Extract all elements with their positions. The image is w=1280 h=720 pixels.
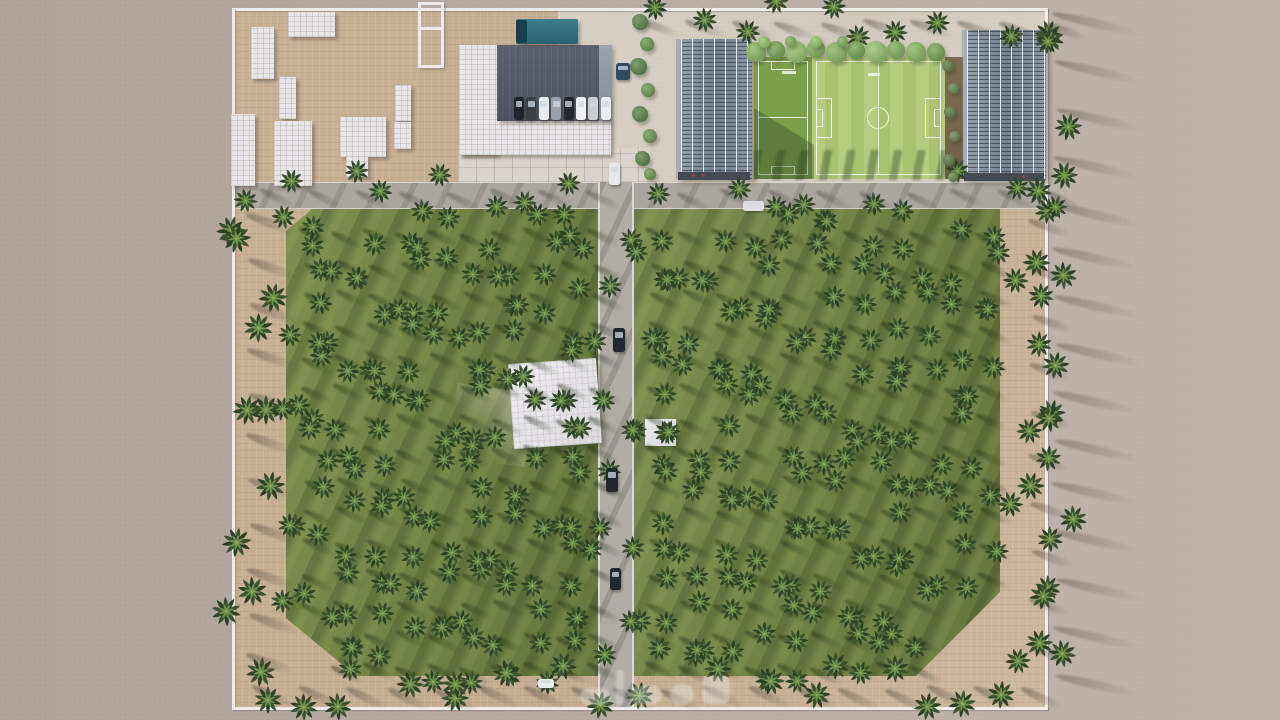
palm-tree-icon [484,246,511,273]
palm-tree-icon [322,312,349,339]
palm-tree-icon [967,277,994,304]
palm-tree-icon [434,179,461,206]
palm-tree-icon [985,7,1013,35]
palm-tree-icon [803,466,830,493]
palm-tree-icon [354,526,381,553]
palm-tree-icon [866,561,893,588]
palm-tree-icon [478,434,505,461]
palm-tree-icon [452,466,479,493]
palm-tree-icon [234,287,267,320]
palm-tree-icon [830,217,857,244]
palm-tree-icon [232,242,265,275]
palm-tree-icon [547,276,574,303]
palm-tree-icon [768,310,795,337]
round-tree [785,36,796,47]
watermark-glyph [580,688,610,705]
palm-tree-icon [698,215,725,242]
red-equipment-dot [1022,175,1025,178]
round-tree [847,41,865,59]
palm-tree-icon [1039,515,1070,546]
palm-tree-icon [319,623,346,650]
residential-block [279,77,296,119]
palm-tree-icon [764,433,791,460]
palm-tree-icon [834,528,861,555]
round-tree [927,43,945,61]
palm-tree-icon [669,312,696,339]
palm-tree-icon [446,220,473,247]
palm-tree-icon [899,558,926,585]
residential-block [340,117,386,157]
watermark-glyph [616,670,624,705]
palm-tree-icon [835,499,862,526]
palm-tree-icon [664,179,691,206]
palm-tree-icon [781,671,812,702]
round-tree [906,42,926,62]
round-tree [643,129,657,143]
round-tree [865,41,887,63]
palm-tree-icon [896,218,923,245]
palm-tree-icon [462,669,493,700]
palm-tree-icon [351,403,378,430]
solar-roof-greenhouse-west [676,39,752,179]
palm-tree-icon [933,526,960,553]
palm-tree-icon [232,462,265,495]
palm-tree-icon [231,332,264,365]
palm-tree-icon [288,590,315,617]
palm-tree-icon [417,556,444,583]
palm-tree-icon [896,435,923,462]
palm-tree-icon [509,670,540,701]
palm-tree-icon [511,619,538,646]
palm-tree-icon [388,465,415,492]
round-tree [948,172,958,182]
palm-tree-icon [331,671,362,702]
palm-tree-icon [482,311,509,338]
car [576,97,586,120]
palm-tree-icon [985,176,1012,203]
palm-tree-icon [547,493,574,520]
palm-tree-icon [548,464,575,491]
palm-tree-icon [451,495,478,522]
palm-tree-icon [234,507,267,540]
palm-tree-icon [799,372,826,399]
palm-tree-icon [289,561,316,588]
palm-tree-icon [510,431,537,458]
palm-tree-icon [510,214,537,241]
palm-tree-icon [703,280,730,307]
walled-enclosure [418,2,444,68]
palm-tree-icon [666,623,693,650]
palm-tree-icon [760,7,788,35]
palm-tree-icon [1041,563,1072,594]
palm-tree-icon [736,494,763,521]
palm-tree-icon [965,342,992,369]
palm-tree-icon [247,175,274,202]
palm-tree-icon [450,524,477,551]
palm-tree-icon [542,435,569,462]
palm-tree-icon [632,431,659,458]
palm-tree-icon [912,669,943,700]
palm-tree-icon [448,589,475,616]
palm-tree-icon [698,432,725,459]
palm-tree-icon [833,340,860,367]
car [743,201,764,211]
palm-tree-icon [1037,467,1068,498]
palm-tree-icon [962,436,989,463]
car [601,97,611,120]
palm-tree-icon [417,339,444,366]
palm-tree-icon [968,465,995,492]
palm-tree-icon [286,431,313,458]
field-marking [782,71,796,74]
palm-tree-icon [350,215,377,242]
palm-tree-icon [354,309,381,336]
palm-tree-icon [1041,328,1072,359]
palm-tree-icon [573,177,600,204]
palm-tree-icon [943,6,971,34]
goal-box [934,109,941,127]
palm-tree-icon [867,308,894,335]
round-tree [943,154,955,166]
palm-tree-icon [1040,424,1071,455]
palm-tree-icon [544,587,571,614]
palm-tree-icon [700,591,727,618]
palm-tree-icon [1014,439,1043,468]
palm-tree-icon [544,370,571,397]
palm-tree-icon [484,463,511,490]
palm-tree-icon [386,530,413,557]
palm-tree-icon [718,6,746,34]
palm-tree-icon [803,177,830,204]
round-tree [758,36,770,48]
palm-tree-icon [1041,93,1072,124]
palm-tree-icon [383,617,410,644]
palm-tree-icon [230,637,263,670]
palm-tree-icon [637,496,664,523]
palm-tree-icon [699,403,726,430]
palm-tree-icon [802,278,829,305]
palm-tree-icon [967,494,994,521]
palm-tree-icon [291,279,318,306]
palm-tree-icon [733,588,760,615]
palm-tree-icon [1040,659,1071,690]
palm-tree-icon [288,373,315,400]
round-tree [942,60,954,72]
palm-tree-icon [737,248,764,275]
palm-tree-icon [632,214,659,241]
round-tree [944,106,956,118]
palm-tree-icon [702,526,729,553]
palm-tree-icon [768,527,795,554]
palm-tree-icon [849,4,877,32]
palm-tree-icon [968,248,995,275]
car [538,679,554,688]
palm-tree-icon [545,558,572,585]
palm-tree-icon [832,586,859,613]
palm-tree-icon [543,623,570,650]
aerial-site-plan-render [0,0,1280,720]
palm-tree-icon [866,344,893,371]
palm-tree-icon [233,597,266,630]
palm-tree-icon [574,432,601,459]
palm-tree-icon [894,179,921,206]
palm-tree-icon [576,374,603,401]
palm-tree-icon [667,370,694,397]
palm-tree-icon [418,527,445,554]
palm-tree-icon [870,673,901,704]
palm-tree-icon [447,401,474,428]
palm-tree-icon [797,437,824,464]
palm-tree-icon [665,218,692,245]
palm-tree-icon [284,670,315,701]
palm-tree-icon [634,590,661,617]
palm-tree-icon [516,250,543,277]
palm-tree-icon [577,338,604,365]
palm-tree-icon [635,561,662,588]
palm-tree-icon [832,369,859,396]
car [606,468,618,492]
palm-tree-icon [579,280,606,307]
palm-tree-icon [864,402,891,429]
palm-tree-icon [578,309,605,336]
round-tree [632,14,648,30]
palm-tree-icon [579,497,606,524]
round-tree [644,168,656,180]
palm-tree-icon [755,176,782,203]
palm-tree-icon [292,467,319,494]
palm-tree-icon [807,8,835,36]
palm-tree-icon [737,465,764,492]
palm-tree-icon [387,277,414,304]
palm-tree-icon [731,219,758,246]
residential-block [288,12,335,37]
palm-tree-icon [343,177,370,204]
palm-tree-icon [865,590,892,617]
palm-tree-icon [231,552,264,585]
palm-tree-icon [480,586,507,613]
palm-tree-icon [767,339,794,366]
palm-tree-icon [414,216,441,243]
palm-tree-icon [415,404,442,431]
palm-tree-icon [865,373,892,400]
palm-tree-icon [898,587,925,614]
residential-block [394,122,411,149]
round-tree [641,83,655,97]
palm-tree-icon [670,493,697,520]
palm-tree-icon [382,219,409,246]
palm-tree-icon [833,557,860,584]
round-tree [810,36,822,48]
palm-tree-icon [321,341,348,368]
palm-tree-icon [237,669,268,700]
palm-tree-icon [765,621,792,648]
palm-tree-icon [901,493,928,520]
palm-tree-icon [419,281,446,308]
round-tree [948,83,959,94]
palm-tree-icon [577,555,604,582]
palm-tree-icon [929,432,956,459]
palm-tree-icon [707,175,734,202]
palm-tree-icon [735,313,762,340]
palm-tree-icon [823,672,854,703]
palm-tree-icon [671,5,699,33]
palm-tree-icon [734,342,761,369]
arabic-watermark [578,668,738,712]
palm-tree-icon [902,247,929,274]
palm-tree-icon [667,587,694,614]
palm-tree-icon [513,344,540,371]
palm-tree-icon [802,495,829,522]
palm-tree-icon [320,370,347,397]
palm-tree-icon [477,175,504,202]
palm-tree-icon [959,670,990,701]
palm-tree-icon [420,462,447,489]
car [526,97,536,120]
palm-tree-icon [383,400,410,427]
car [551,97,561,120]
palm-tree-icon [801,307,828,334]
warehouse-office-wing-south [459,119,611,155]
palm-tree-icon [1037,232,1068,263]
palm-tree-icon [483,499,510,526]
center-circle [867,107,889,129]
palm-tree-icon [449,343,476,370]
truck-cab [516,20,527,43]
residential-block [395,85,411,121]
palm-tree-icon [386,178,413,205]
round-tree [640,37,654,51]
palm-tree-icon [1032,8,1060,36]
palm-tree-icon [732,400,759,427]
watermark-glyph [630,686,662,705]
palm-tree-icon [800,343,827,370]
palm-tree-icon [702,309,729,336]
palm-tree-icon [966,530,993,557]
round-tree [887,41,905,59]
palm-tree-icon [770,462,797,489]
palm-tree-icon [670,276,697,303]
palm-tree-icon [867,525,894,552]
palm-tree-icon [897,406,924,433]
palm-tree-icon [836,463,863,490]
palm-tree-icon [731,436,758,463]
palm-tree-icon [800,560,827,587]
palm-tree-icon [295,176,322,203]
goal-box [816,109,823,127]
palm-tree-icon [515,496,542,523]
palm-tree-icon [735,530,762,557]
palm-tree-icon [1039,280,1070,311]
car [514,97,524,120]
watermark-glyph [670,684,694,705]
palm-tree-icon [932,555,959,582]
palm-tree-icon [962,219,989,246]
palm-tree-icon [966,313,993,340]
palm-tree-icon [798,618,825,645]
palm-tree-icon [451,278,478,305]
palm-tree-icon [416,592,443,619]
palm-tree-icon [935,251,962,278]
car [616,63,630,80]
palm-tree-icon [384,588,411,615]
palm-tree-icon [898,370,925,397]
palm-tree-icon [1014,204,1043,233]
palm-tree-icon [736,277,763,304]
palm-tree-icon [1038,141,1069,172]
palm-tree-icon [355,280,382,307]
palm-tree-icon [732,617,759,644]
palm-tree-icon [352,591,379,618]
field-marking [868,73,880,76]
palm-tree-icon [1038,611,1069,642]
palm-tree-icon [963,400,990,427]
palm-tree-icon [900,312,927,339]
solar-roof-greenhouse-east [962,30,1046,180]
palm-tree-icon [511,402,538,429]
palm-shadows-on-field [754,150,945,180]
palm-tree-icon [1015,348,1044,377]
palm-tree-icon [846,178,873,205]
palm-tree-icon [699,620,726,647]
round-tree [837,36,848,47]
watermark-glyph [702,676,730,704]
car [539,97,549,120]
palm-tree-icon [868,496,895,523]
palm-tree-icon [373,672,404,703]
palm-tree-icon [634,373,661,400]
red-equipment-dot [692,174,695,177]
palm-tree-icon [290,308,317,335]
palm-tree-icon [479,405,506,432]
cargo-truck [516,19,578,44]
palm-tree-icon [929,215,956,242]
palm-tree-icon [525,176,552,203]
palm-tree-icon [323,493,350,520]
round-tree [630,58,647,75]
palm-tree-icon [478,217,505,244]
round-tree [949,131,960,142]
car [609,163,620,185]
palm-tree-icon [580,251,607,278]
round-tree [635,151,650,166]
palm-tree-icon [575,620,602,647]
palm-tree-icon [580,468,607,495]
palm-tree-icon [1033,177,1060,204]
round-tree [632,106,648,122]
palm-tree-icon [965,559,992,586]
goal-box [771,61,795,70]
palm-tree-icon [933,309,960,336]
palm-tree-icon [671,247,698,274]
car [610,568,621,590]
palm-tree-icon [382,436,409,463]
red-equipment-dot [702,174,705,177]
residential-block [251,27,274,79]
palm-tree-icon [835,282,862,309]
palm-tree-icon [514,525,541,552]
palm-tree-icon [546,312,573,339]
palm-tree-icon [353,555,380,582]
palm-tree-icon [863,214,890,241]
palm-tree-icon [734,670,765,701]
palm-tree-icon [1038,376,1069,407]
palm-tree-icon [668,558,695,585]
palm-tree-icon [482,528,509,555]
palm-tree-icon [896,5,924,33]
car [564,97,574,120]
palm-tree-icon [548,247,575,274]
palm-tree-icon [1006,671,1037,702]
